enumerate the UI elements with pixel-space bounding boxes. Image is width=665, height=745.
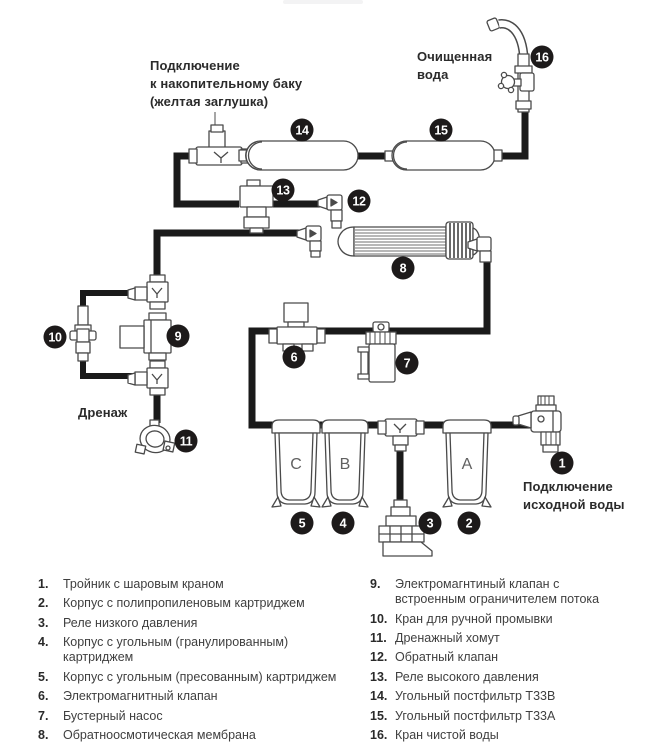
source-water-line2: исходной воды [523,496,625,514]
clean-water-line2: вода [417,66,492,84]
legend-text-5: Корпус с угольным (пресованным) картридж… [63,670,340,685]
clean-water-faucet-drawing [486,17,534,112]
solenoid-valve-drawing [269,303,325,351]
legend-num-2: 2. [38,596,63,611]
tank-connection-line1: Подключение [150,57,302,75]
membrane-inlet-elbow [297,226,321,257]
badge-16: 16 [531,46,554,69]
legend-text-16: Кран чистой воды [395,728,628,743]
feed-tee-fitting [378,419,424,451]
legend-text-4: Корпус с угольным (гранулированным) карт… [63,635,340,665]
legend-text-15: Угольный постфильтр Т33А [395,709,628,724]
parts-legend: 1. Тройник с шаровым краном 2. Корпус с … [0,577,665,745]
badge-11: 11 [175,430,198,453]
top-smudge [283,0,363,4]
clean-water-label: Очищенная вода [417,48,492,84]
badge-6: 6 [283,346,306,369]
legend-num-9: 9. [370,577,395,607]
legend-text-6: Электромагнитный клапан [63,689,340,704]
badge-8: 8 [392,257,415,280]
badge-3: 3 [419,512,442,535]
legend-num-10: 10. [370,612,395,627]
legend-item-13: 13. Реле высокого давления [370,670,628,685]
legend-num-7: 7. [38,709,63,724]
housing-letter-c: C [290,456,302,474]
badge-12: 12 [348,190,371,213]
legend-num-3: 3. [38,616,63,631]
legend-item-8: 8. Обратноосмотическая мембрана [38,728,340,743]
legend-column-left: 1. Тройник с шаровым краном 2. Корпус с … [38,577,340,745]
drain-clamp-drawing [135,420,174,455]
check-valve-drawing [318,195,342,228]
badge-15: 15 [430,119,453,142]
legend-num-16: 16. [370,728,395,743]
clean-water-line1: Очищенная [417,48,492,66]
housing-letter-b: B [340,456,351,474]
legend-text-2: Корпус с полипропиленовым картриджем [63,596,340,611]
legend-num-6: 6. [38,689,63,704]
legend-text-3: Реле низкого давления [63,616,340,631]
feed-valve-drawing [513,396,561,452]
legend-item-12: 12. Обратный клапан [370,650,628,665]
source-water-line1: Подключение [523,478,625,496]
legend-text-8: Обратноосмотическая мембрана [63,728,340,743]
tank-connection-line2: к накопительному баку [150,75,302,93]
legend-item-10: 10. Кран для ручной промывки [370,612,628,627]
housing-letter-a: A [462,456,473,474]
legend-num-5: 5. [38,670,63,685]
badge-5: 5 [291,512,314,535]
legend-num-12: 12. [370,650,395,665]
legend-item-16: 16. Кран чистой воды [370,728,628,743]
legend-num-8: 8. [38,728,63,743]
postfilter-t33b-drawing [239,141,358,170]
ro-membrane-drawing [338,222,480,259]
legend-item-9: 9. Электромагнтиный клапан с встроенным … [370,577,628,607]
legend-text-11: Дренажный хомут [395,631,628,646]
legend-text-1: Тройник с шаровым краном [63,577,340,592]
legend-item-7: 7. Бустерный насос [38,709,340,724]
legend-text-12: Обратный клапан [395,650,628,665]
drain-label: Дренаж [78,404,127,422]
legend-item-11: 11. Дренажный хомут [370,631,628,646]
legend-item-1: 1. Тройник с шаровым краном [38,577,340,592]
legend-item-4: 4. Корпус с угольным (гранулированным) к… [38,635,340,665]
legend-num-13: 13. [370,670,395,685]
legend-item-3: 3. Реле низкого давления [38,616,340,631]
legend-num-1: 1. [38,577,63,592]
badge-10: 10 [44,326,67,349]
badge-13: 13 [272,179,295,202]
legend-num-15: 15. [370,709,395,724]
legend-item-2: 2. Корпус с полипропиленовым картриджем [38,596,340,611]
legend-item-6: 6. Электромагнитный клапан [38,689,340,704]
legend-text-14: Угольный постфильтр Т33В [395,689,628,704]
ro-system-installation-diagram: 1 2 3 4 5 6 7 8 9 10 11 12 13 14 15 16 П… [0,0,665,745]
postfilter-t33a-drawing [385,141,502,170]
flush-valve-stack-drawing [120,275,171,395]
source-water-label: Подключение исходной воды [523,478,625,514]
badge-7: 7 [396,352,419,375]
legend-text-9: Электромагнтиный клапан с встроенным огр… [395,577,628,607]
legend-num-4: 4. [38,635,63,665]
legend-num-11: 11. [370,631,395,646]
legend-num-14: 14. [370,689,395,704]
badge-14: 14 [291,119,314,142]
legend-item-14: 14. Угольный постфильтр Т33В [370,689,628,704]
legend-text-10: Кран для ручной промывки [395,612,628,627]
tank-connection-label: Подключение к накопительному баку (желта… [150,57,302,111]
tank-connection-line3: (желтая заглушка) [150,93,302,111]
legend-item-5: 5. Корпус с угольным (пресованным) картр… [38,670,340,685]
legend-item-15: 15. Угольный постфильтр Т33А [370,709,628,724]
badge-1: 1 [551,452,574,475]
badge-4: 4 [332,512,355,535]
high-pressure-relay-drawing [240,180,273,233]
manual-flush-valve-drawing [70,306,96,361]
legend-text-7: Бустерный насос [63,709,340,724]
badge-9: 9 [167,325,190,348]
legend-text-13: Реле высокого давления [395,670,628,685]
legend-column-right: 9. Электромагнтиный клапан с встроенным … [370,577,628,745]
badge-2: 2 [458,512,481,535]
